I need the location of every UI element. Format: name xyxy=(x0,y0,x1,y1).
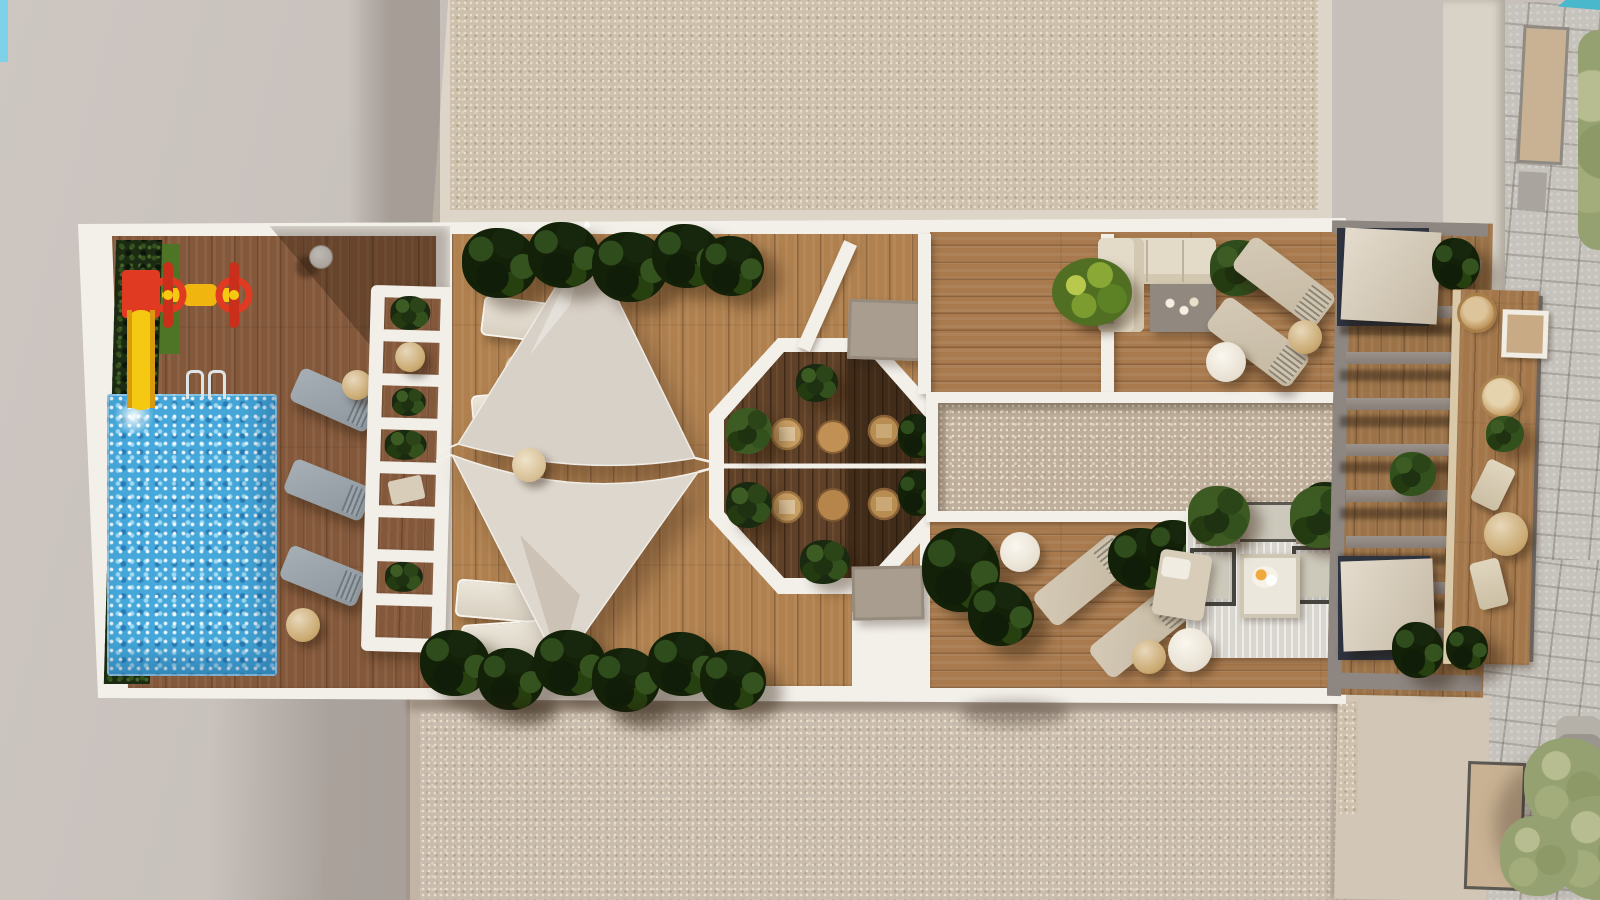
ground-shadow-top-band xyxy=(348,0,440,228)
balcony-round-table xyxy=(1484,512,1528,556)
trellis-opening-6 xyxy=(378,517,435,551)
l-sofa-cushion-line-2 xyxy=(1182,240,1184,282)
planter-square-top xyxy=(847,299,923,362)
coffee-table-dishes xyxy=(1162,296,1202,320)
side-table-wicker-2 xyxy=(286,608,320,642)
side-table-wood-2 xyxy=(1132,640,1166,674)
round-table-1 xyxy=(817,421,849,453)
daybed-pillow xyxy=(1161,556,1192,580)
playground-equipment xyxy=(100,240,270,430)
deck-divider-wall-1 xyxy=(918,234,931,394)
scene-rooftop-aerial xyxy=(0,0,1600,900)
trellis-opening-7 xyxy=(377,561,434,595)
roof-gravel-top xyxy=(450,0,1318,210)
planter-bush-top-2 xyxy=(528,222,600,288)
neighbour-roof-vent xyxy=(1517,171,1547,210)
street-tree-blob-3 xyxy=(1500,816,1578,896)
roof-gravel-bottom xyxy=(420,712,1348,900)
swimming-pool xyxy=(107,394,277,676)
planter-square-bottom xyxy=(852,565,925,620)
bush-below-skylight-2 xyxy=(968,582,1034,646)
neighbour-skylight xyxy=(1516,25,1569,165)
side-table-white-1 xyxy=(1206,342,1246,382)
building-bottom-gravel-strip xyxy=(1338,702,1358,814)
balcony-wicker-chair-1 xyxy=(1460,296,1494,330)
stair-canopy-top xyxy=(1341,228,1442,325)
skylight-strip-gravel xyxy=(938,403,1334,511)
round-table-2 xyxy=(817,489,849,521)
ground-shadow-bottom-band xyxy=(210,694,410,900)
pergola-plant-1 xyxy=(1432,238,1480,290)
bush-shadow-on-gravel-1 xyxy=(470,700,560,726)
side-table-white-2 xyxy=(1000,532,1040,572)
l-sofa-cushion-line xyxy=(1146,240,1148,282)
pergola-plant-3 xyxy=(1392,622,1444,678)
neighbour-pool-sliver-left xyxy=(0,0,8,62)
planter-bush-top-1 xyxy=(462,228,538,298)
palm-plant xyxy=(1052,258,1132,326)
trellis-opening-4 xyxy=(380,429,437,463)
planter-bush-bottom-6 xyxy=(700,650,766,710)
bistro-table-under-sails xyxy=(512,448,546,482)
planter-bush-top-5 xyxy=(700,236,764,296)
bush-shadow-on-gravel-3 xyxy=(960,700,1070,726)
side-table-wood-1 xyxy=(1288,320,1322,354)
trellis-opening-8 xyxy=(375,605,432,639)
side-table-white-3 xyxy=(1168,628,1212,672)
breakfast-tray xyxy=(1252,566,1278,588)
balcony-wall-mirror xyxy=(1501,309,1549,359)
balcony-plant-bottom xyxy=(1446,626,1488,670)
street-tree-top xyxy=(1578,30,1600,250)
bush-shadow-on-gravel-2 xyxy=(610,702,710,730)
balcony-wicker-chair-2 xyxy=(1482,378,1520,416)
trellis-opening-5 xyxy=(379,473,436,507)
octagon-walkway-bottom xyxy=(852,612,922,698)
